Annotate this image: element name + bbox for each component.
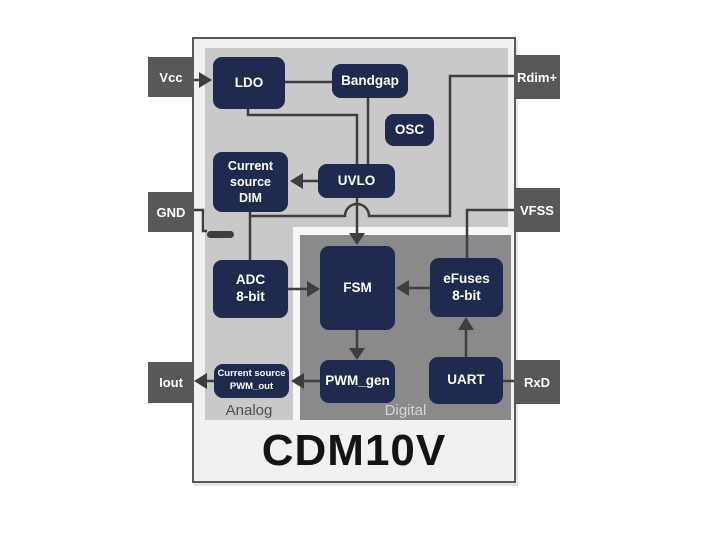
block-uvlo: UVLO xyxy=(318,164,395,198)
block-efuses-line2: 8-bit xyxy=(452,288,481,305)
block-current-source-dim-line1: Current xyxy=(228,158,273,174)
pin-rdim-plus-label: Rdim+ xyxy=(517,70,557,85)
pin-rxd: RxD xyxy=(514,360,560,404)
pin-vcc-label: Vcc xyxy=(159,70,182,85)
digital-region-label: Digital xyxy=(300,402,511,419)
block-pwm-gen-label: PWM_gen xyxy=(325,373,390,390)
block-current-source-pwm-out-line2: PWM_out xyxy=(230,381,273,394)
block-ldo: LDO xyxy=(213,57,285,109)
block-ldo-label: LDO xyxy=(235,75,264,92)
block-pwm-gen: PWM_gen xyxy=(320,360,395,403)
block-adc-line1: ADC xyxy=(236,272,265,289)
pin-iout: Iout xyxy=(148,362,194,403)
analog-region-label: Analog xyxy=(205,402,293,419)
block-bandgap-label: Bandgap xyxy=(341,73,399,90)
block-adc-8bit: ADC 8-bit xyxy=(213,260,288,318)
block-bandgap: Bandgap xyxy=(332,64,408,98)
block-osc: OSC xyxy=(385,114,434,146)
pin-gnd: GND xyxy=(148,192,194,232)
block-uart: UART xyxy=(429,357,503,404)
block-current-source-pwm-out-line1: Current source xyxy=(217,368,285,381)
pin-vfss-label: VFSS xyxy=(520,203,554,218)
pin-vcc: Vcc xyxy=(148,57,194,97)
block-current-source-dim-line2: source xyxy=(230,174,271,190)
block-uvlo-label: UVLO xyxy=(338,173,376,190)
pin-iout-label: Iout xyxy=(159,375,183,390)
block-current-source-dim-line3: DIM xyxy=(239,190,262,206)
block-current-source-dim: Current source DIM xyxy=(213,152,288,212)
pin-vfss: VFSS xyxy=(514,188,560,232)
block-efuses-line1: eFuses xyxy=(443,271,490,288)
block-efuses-8bit: eFuses 8-bit xyxy=(430,258,503,317)
block-adc-line2: 8-bit xyxy=(236,289,265,306)
pin-rdim-plus: Rdim+ xyxy=(514,55,560,99)
block-current-source-pwm-out: Current source PWM_out xyxy=(214,364,289,398)
block-fsm-label: FSM xyxy=(343,280,372,297)
pin-gnd-label: GND xyxy=(157,205,186,220)
block-osc-label: OSC xyxy=(395,122,424,139)
pin-rxd-label: RxD xyxy=(524,375,550,390)
block-fsm: FSM xyxy=(320,246,395,330)
block-diagram: LDO Bandgap OSC Current source DIM UVLO … xyxy=(0,0,703,555)
chip-title: CDM10V xyxy=(192,426,516,476)
block-uart-label: UART xyxy=(447,372,485,389)
